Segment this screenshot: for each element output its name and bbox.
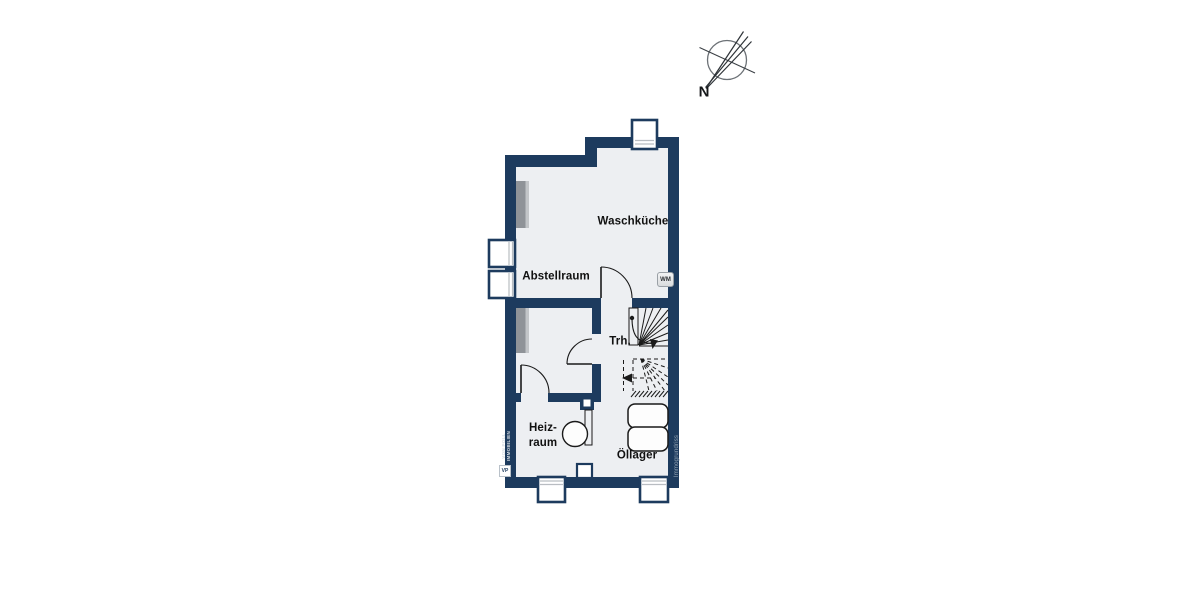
window-bottom-right [640,477,668,502]
window-bottom-left [538,477,565,502]
room-label-heizraum: Heiz- raum [529,421,558,451]
radiator-middle-room [516,308,529,353]
flue-box [577,464,592,478]
floor-plan-drawing [0,0,1200,600]
washing-machine-label: WM [660,277,671,283]
compass-icon [700,32,756,89]
room-label-heizraum-line1: Heiz- [529,422,557,434]
window-left-lower [489,271,515,298]
compass-north-label: N [699,84,710,101]
room-label-abstellraum: Abstellraum [522,270,590,285]
watermark-right: Immogrundriss [674,435,680,477]
room-label-heizraum-line2: raum [529,437,558,449]
room-label-waschkueche: Waschküche [598,215,669,230]
watermark-left: VON POLL IMMOBILIEN [501,431,511,461]
chimney-block [632,120,657,149]
oil-tanks [628,404,668,451]
room-label-oellager: Öllager [617,449,657,464]
floor-plan-canvas: Waschküche Abstellraum Trh. Heiz- raum Ö… [0,0,1200,600]
radiator-abstellraum [516,181,529,228]
window-left-upper [489,240,515,267]
watermark-left-line2: IMMOBILIEN [506,431,511,461]
watermark-left-logo: VP [499,465,511,477]
watermark-left-logo-text: VP [502,468,509,474]
room-label-treppenhaus: Trh. [609,335,631,350]
washing-machine-symbol: WM [657,272,674,287]
